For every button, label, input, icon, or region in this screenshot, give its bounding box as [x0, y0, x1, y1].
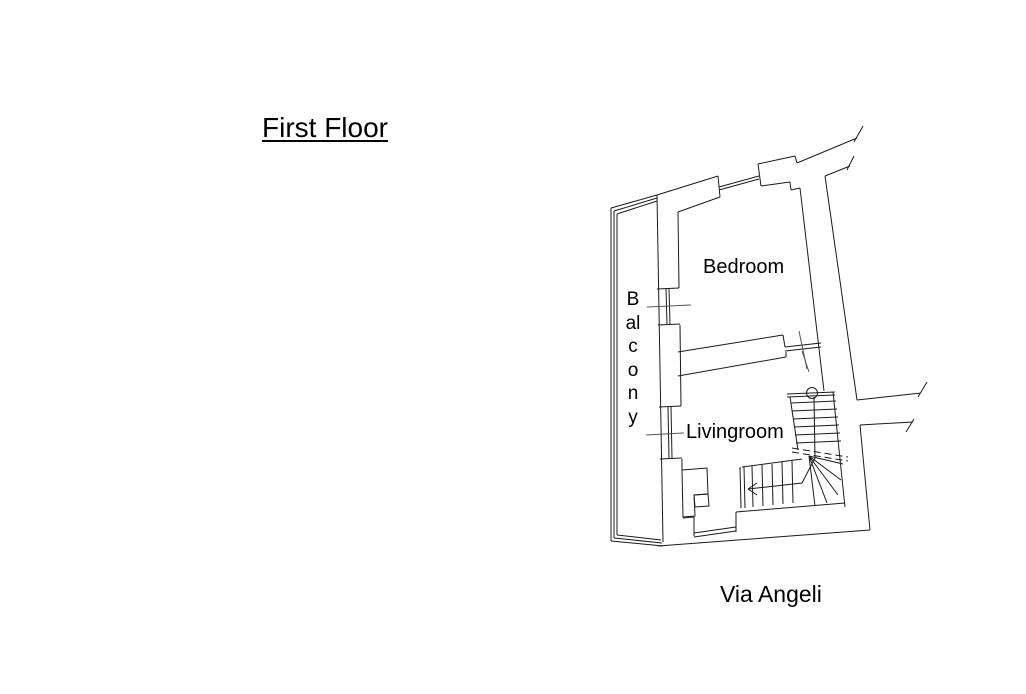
door-opening-ticks: [799, 331, 809, 372]
bottom-exterior-wall: [658, 503, 870, 546]
floor-plan-drawing: [0, 0, 1026, 694]
top-wall-window: [719, 176, 759, 190]
livingroom-balcony-window: [659, 406, 682, 459]
corner-duct-protrusion: [682, 468, 709, 517]
floor-plan-page: First Floor Bedroom Livingroom Balcony V…: [0, 0, 1026, 694]
stair-direction-arrow: [748, 397, 815, 495]
livingroom-label: Livingroom: [686, 421, 784, 444]
balcony-label: Balcony: [624, 288, 642, 429]
wall-break-marks-right: [857, 382, 927, 432]
page-title: First Floor: [262, 112, 388, 144]
wall-break-marks-top: [797, 126, 863, 176]
balcony-wall: [657, 195, 682, 542]
interior-divider-wall: [678, 331, 821, 376]
winder-staircase: [740, 388, 848, 509]
top-exterior-wall: [657, 126, 863, 212]
bedroom-label: Bedroom: [703, 256, 784, 279]
entrance-threshold: [694, 527, 736, 537]
street-label: Via Angeli: [720, 581, 822, 608]
right-party-wall: [800, 176, 927, 530]
